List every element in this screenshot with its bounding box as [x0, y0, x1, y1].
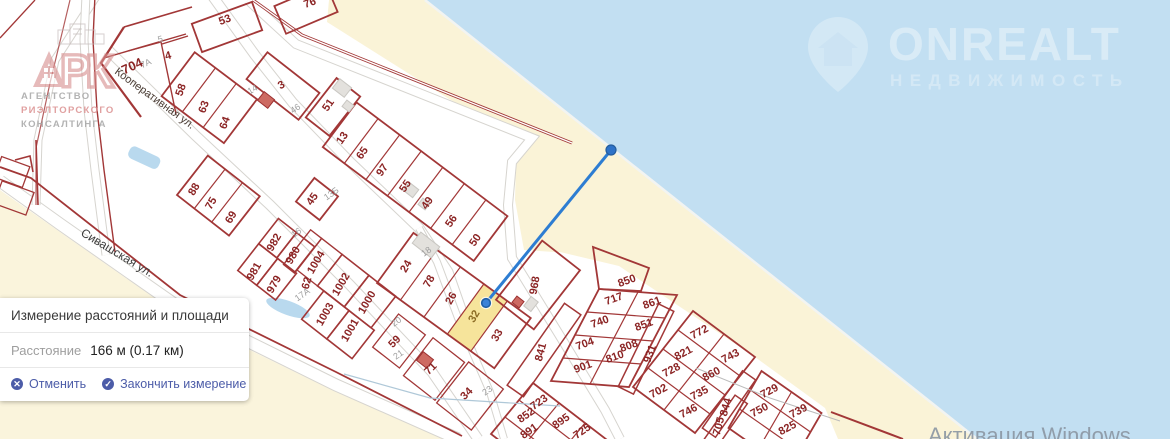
- svg-text:740: 740: [589, 313, 610, 331]
- svg-text:РИЭЛТОРСКОГО: РИЭЛТОРСКОГО: [21, 105, 115, 116]
- svg-text:88: 88: [186, 181, 203, 198]
- svg-text:729: 729: [759, 382, 781, 401]
- svg-text:704: 704: [574, 335, 596, 353]
- svg-text:51: 51: [320, 97, 337, 114]
- svg-text:750: 750: [749, 401, 771, 420]
- svg-text:33: 33: [489, 327, 506, 344]
- svg-text:50: 50: [467, 232, 484, 249]
- svg-text:63: 63: [196, 99, 211, 115]
- svg-text:64: 64: [217, 114, 233, 130]
- svg-text:1001: 1001: [339, 317, 362, 344]
- svg-text:728: 728: [661, 361, 683, 380]
- svg-text:735: 735: [689, 384, 711, 403]
- svg-text:78: 78: [421, 273, 438, 290]
- svg-text:РК: РК: [60, 45, 115, 97]
- svg-text:76: 76: [302, 0, 318, 11]
- svg-text:746: 746: [678, 402, 700, 421]
- svg-text:895: 895: [550, 411, 572, 431]
- svg-text:КОНСАЛТИНГА: КОНСАЛТИНГА: [21, 119, 107, 130]
- svg-text:860: 860: [701, 365, 723, 384]
- svg-text:24: 24: [398, 257, 415, 274]
- svg-text:980: 980: [284, 245, 304, 267]
- svg-text:851: 851: [633, 316, 654, 334]
- svg-text:14: 14: [246, 83, 260, 97]
- svg-text:56: 56: [443, 213, 460, 230]
- svg-text:717: 717: [603, 290, 624, 308]
- svg-text:58: 58: [173, 82, 188, 98]
- svg-text:931: 931: [641, 343, 659, 364]
- svg-text:861: 861: [641, 294, 662, 312]
- svg-text:982: 982: [265, 232, 285, 254]
- svg-text:45: 45: [304, 191, 321, 208]
- svg-text:725: 725: [571, 421, 593, 439]
- svg-text:ONREALT: ONREALT: [888, 18, 1121, 70]
- svg-text:Активация Windows: Активация Windows: [928, 423, 1131, 439]
- svg-text:743: 743: [720, 347, 742, 366]
- svg-text:1003: 1003: [314, 301, 337, 328]
- svg-text:75: 75: [203, 195, 220, 212]
- svg-text:850: 850: [616, 272, 637, 290]
- svg-text:772: 772: [689, 323, 711, 342]
- svg-text:705: 705: [711, 416, 727, 437]
- svg-text:97: 97: [374, 162, 391, 179]
- svg-text:69: 69: [223, 209, 240, 226]
- svg-text:Кооперативная ул.: Кооперативная ул.: [112, 66, 196, 132]
- svg-text:968: 968: [528, 275, 543, 295]
- svg-text:АГЕНТСТВО: АГЕНТСТВО: [21, 91, 90, 102]
- svg-text:821: 821: [673, 344, 695, 363]
- svg-text:702: 702: [648, 382, 670, 401]
- svg-text:НЕДВИЖИМОСТЬ: НЕДВИЖИМОСТЬ: [890, 71, 1130, 90]
- svg-text:49: 49: [419, 195, 436, 212]
- svg-text:13Б: 13Б: [322, 185, 341, 202]
